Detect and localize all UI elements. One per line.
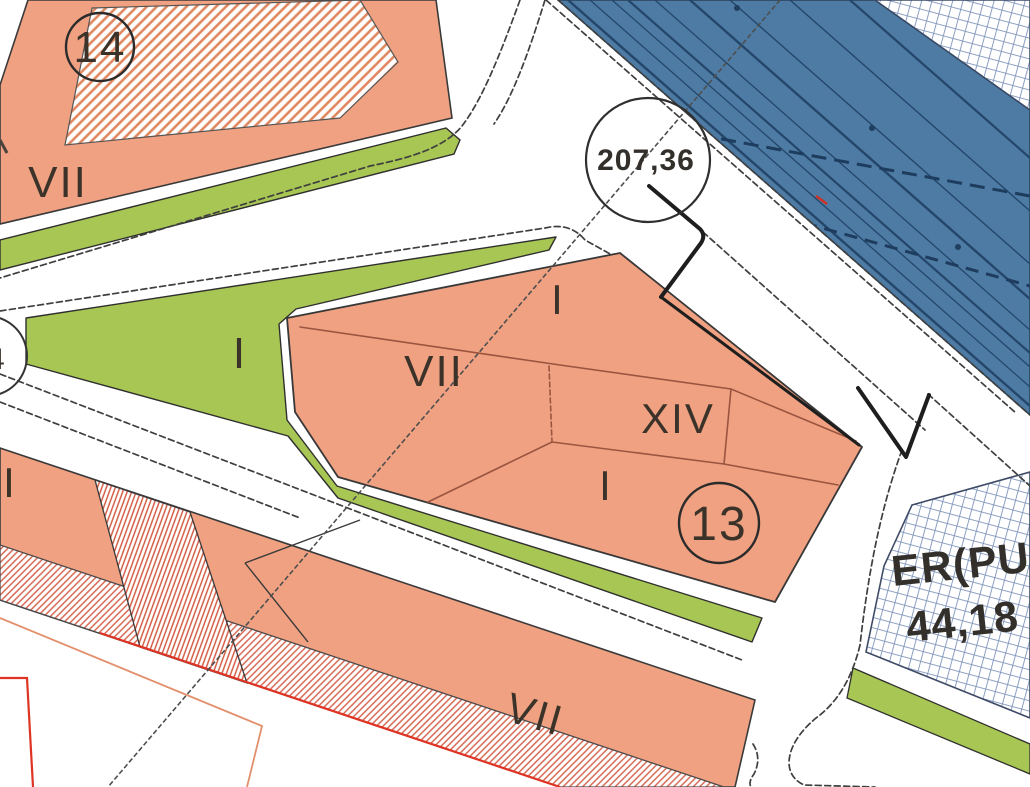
block-14-use-label: VII — [28, 158, 88, 207]
edge-circle-number: 4 — [0, 343, 7, 376]
railway-dot — [955, 244, 961, 250]
block-13-label-i-bottom: I — [599, 462, 613, 509]
railway-dot — [734, 5, 740, 11]
left-strip-label: I — [3, 459, 17, 506]
junction-elevation-value: 207,36 — [597, 144, 695, 177]
zoning-map: 14 VII 207,36 I I VII XIV I 13 I VII ER(… — [0, 0, 1030, 787]
block-14-number: 14 — [74, 23, 127, 72]
railway-dot — [869, 125, 875, 131]
block-13-label-i-top: I — [551, 276, 565, 323]
block-13-number: 13 — [690, 498, 747, 551]
block-13-label-vii: VII — [404, 347, 464, 396]
green-triangle-label: I — [233, 329, 247, 378]
block-13-label-xiv: XIV — [641, 395, 715, 442]
